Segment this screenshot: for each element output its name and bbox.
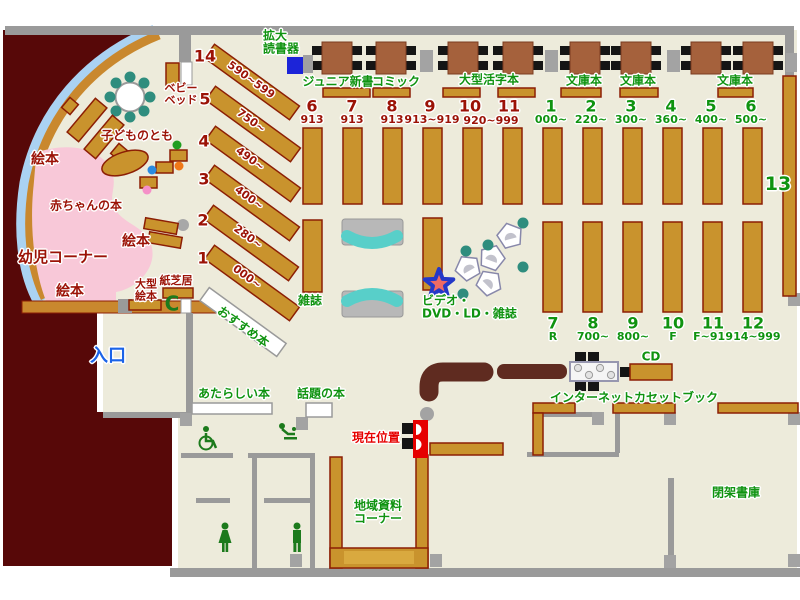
bookshelf	[343, 128, 362, 204]
label-ogata-ehon: 大型 絵本	[135, 278, 157, 301]
pillar	[545, 50, 558, 72]
shelf-range: 500~	[735, 114, 767, 126]
phone-icon: C	[165, 294, 180, 315]
bookshelf	[303, 128, 322, 204]
shelf-number: 4	[198, 134, 209, 151]
label-wadai: 話題の本	[297, 388, 345, 401]
shelf-range: 300~	[615, 114, 647, 126]
label-chiiki-shiryo: 地域資料 コーナー	[354, 499, 402, 524]
magnifier-machine	[287, 57, 303, 74]
label-internet: インターネット	[550, 392, 634, 405]
label-bunko-3: 文庫本	[717, 75, 753, 88]
stool-green	[173, 141, 182, 150]
bookshelf	[703, 222, 722, 312]
bookshelf	[663, 222, 682, 312]
chair	[303, 55, 313, 73]
top-wall	[5, 26, 794, 35]
label-current-location: 現在位置	[352, 432, 400, 445]
library-floor-map: 拡大 読書器 ジュニア新書 コミック 大型活字本 文庫本 文庫本 文庫本 13 …	[0, 0, 800, 600]
label-shelf-13: 13	[765, 175, 791, 195]
shelf-range: 220~	[575, 114, 607, 126]
wall	[181, 453, 233, 458]
wall	[615, 413, 620, 453]
bookshelf	[663, 128, 682, 204]
pillar	[430, 554, 442, 567]
step-shelf	[156, 162, 173, 173]
bookshelf	[543, 128, 562, 204]
stool-orange	[175, 162, 184, 171]
current-location-marker	[413, 420, 428, 458]
label-entrance: 入口	[90, 348, 126, 367]
bookshelf	[383, 128, 402, 204]
wall	[264, 498, 312, 503]
label-bunko-1: 文庫本	[566, 75, 602, 88]
shelf-range: R	[549, 331, 557, 343]
pillar	[592, 412, 604, 425]
pillar	[664, 555, 676, 568]
chair	[402, 423, 413, 434]
local-materials-shelf-inner	[344, 551, 414, 564]
pillar	[290, 554, 302, 567]
label-heika-shoko: 閉架書庫	[712, 487, 760, 500]
shelf-range: 360~	[655, 114, 687, 126]
label-zasshi: 雑誌	[298, 295, 322, 308]
label-baby-bed: ベビー ベッド	[165, 82, 198, 105]
bookshelf	[303, 220, 322, 292]
label-ehon-1: 絵本	[31, 153, 59, 168]
wall	[248, 453, 312, 458]
corridor-wall	[186, 313, 193, 414]
label-atarashii: あたらしい本	[198, 388, 270, 401]
bookshelf	[463, 128, 482, 204]
pillar	[786, 53, 797, 72]
topic-books-shelf	[306, 403, 332, 417]
bookshelf	[703, 128, 722, 204]
stool-gray	[177, 219, 189, 231]
label-comic: コミック	[372, 76, 420, 89]
bookshelf	[430, 443, 503, 455]
label-magnifier: 拡大 読書器	[263, 29, 299, 54]
cassette-shelf	[718, 403, 798, 413]
wall	[668, 478, 674, 568]
pillar	[179, 33, 191, 62]
pillar	[667, 50, 680, 72]
pillar	[420, 50, 433, 72]
bookshelf	[583, 222, 602, 312]
wall	[310, 453, 315, 568]
cd-shelf	[630, 364, 672, 380]
pillar	[788, 554, 800, 567]
shelf-range: 800~	[617, 331, 649, 343]
pillar	[180, 413, 192, 426]
shelf-number: 3	[198, 172, 209, 189]
wall	[252, 458, 257, 568]
shelf-number: 2	[197, 213, 208, 230]
shelf-range: 400~	[695, 114, 727, 126]
label-yoji-corner: 幼児コーナー	[18, 250, 108, 266]
shelf-range: 913~919	[404, 114, 459, 126]
new-books-shelf	[192, 403, 272, 414]
chair	[402, 438, 413, 449]
label-large-print: 大型活字本	[459, 74, 519, 87]
shelf-range: F	[669, 331, 677, 343]
bookshelf	[533, 413, 543, 455]
slot	[181, 299, 191, 313]
bench-seat	[347, 294, 397, 301]
shelf-range: 000~	[535, 114, 567, 126]
service-counter	[497, 364, 567, 379]
shelf-number: 14	[194, 49, 216, 66]
shelf-number: 11	[498, 99, 520, 116]
corridor-wall	[103, 412, 192, 418]
shelf-range: 913	[341, 114, 364, 126]
label-cassette-book: カセットブック	[634, 392, 718, 405]
step-shelf	[170, 150, 187, 161]
shelf-number: 5	[199, 92, 210, 109]
pillar-round	[420, 407, 434, 421]
pillar	[664, 412, 676, 425]
label-junior-shinsho: ジュニア新書	[302, 76, 373, 89]
pillar	[296, 417, 308, 430]
bookshelf	[743, 128, 762, 204]
bookshelf	[743, 222, 762, 312]
label-ehon-2: 絵本	[122, 235, 150, 250]
label-bunko-2: 文庫本	[620, 75, 656, 88]
bottom-wall	[170, 568, 800, 577]
stool-pink	[143, 186, 152, 195]
bookshelf	[623, 222, 642, 312]
stool-blue	[148, 166, 157, 175]
shelf-number: 1	[197, 251, 208, 268]
label-kamishibai: 紙芝居	[160, 275, 193, 287]
bookshelf	[503, 128, 522, 204]
shelf-range: 920~999	[463, 115, 518, 127]
label-video-dvd: ビデオ・ DVD・LD・雑誌	[422, 294, 517, 319]
bench-seat	[347, 236, 397, 243]
shelf-range: 700~	[577, 331, 609, 343]
label-kodomo-no-tomo: 子どものとも	[101, 130, 173, 143]
label-cd: CD	[642, 351, 661, 364]
shelf-range: 913	[381, 114, 404, 126]
bookshelf	[623, 128, 642, 204]
shelf-range: 914~999	[725, 331, 780, 343]
label-ehon-3: 絵本	[56, 285, 84, 300]
shelf-range: 913	[301, 114, 324, 126]
bookshelf	[543, 222, 562, 312]
bookshelf	[583, 128, 602, 204]
pillar	[788, 412, 800, 425]
shelf-number: 10	[459, 99, 481, 116]
bookshelf	[423, 128, 442, 204]
label-akachan: 赤ちゃんの本	[50, 200, 122, 213]
wall	[196, 498, 230, 503]
